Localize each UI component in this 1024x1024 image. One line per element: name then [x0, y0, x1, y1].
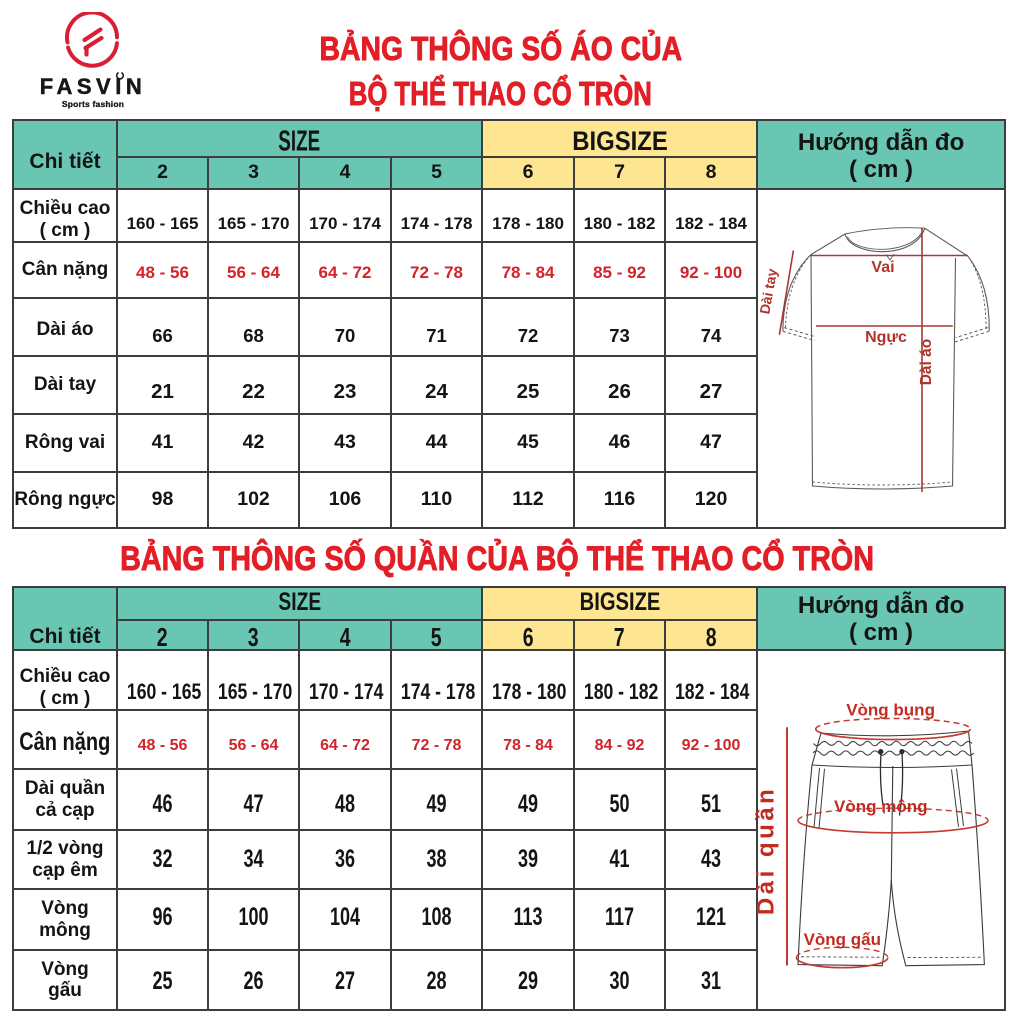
svg-text:Vòng mông: Vòng mông [834, 797, 927, 816]
svg-text:Dài áo: Dài áo [918, 339, 935, 386]
svg-text:Vai: Vai [871, 259, 894, 276]
svg-text:Vòng gấu: Vòng gấu [804, 930, 881, 949]
svg-text:Dài tay: Dài tay [756, 267, 780, 315]
svg-text:Ngực: Ngực [865, 329, 907, 346]
svg-text:Vòng bụng: Vòng bụng [846, 701, 935, 720]
svg-text:Dài quần: Dài quần [753, 786, 780, 915]
